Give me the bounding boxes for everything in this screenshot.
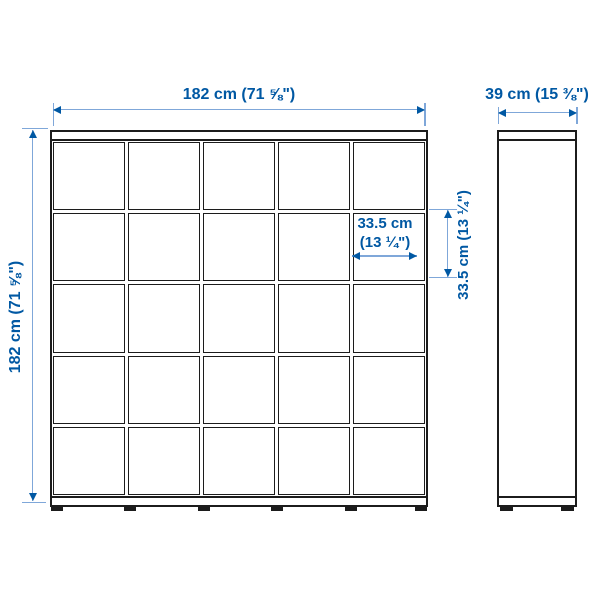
shelf-cell: [278, 213, 350, 281]
extension-tick: [22, 128, 48, 130]
side-foot: [500, 507, 513, 511]
side-view: [497, 130, 577, 507]
shelf-cell: [53, 356, 125, 424]
cell-width-label-line2: (13 ¼"): [345, 234, 425, 252]
shelf-cell: [203, 356, 275, 424]
arrowhead-left-icon: [352, 252, 360, 260]
shelf-cell: [203, 284, 275, 352]
shelf-cell: [278, 427, 350, 495]
shelf-cell: [53, 213, 125, 281]
shelf-cell: [203, 142, 275, 210]
shelf-cell: [278, 142, 350, 210]
front-foot: [345, 507, 357, 511]
arrowhead-down-icon: [29, 493, 37, 501]
front-top-panel: [52, 132, 426, 141]
cell-width-label-line1: 33.5 cm: [345, 215, 425, 233]
shelf-cell: [278, 284, 350, 352]
side-foot: [561, 507, 574, 511]
dimension-diagram-canvas: 182 cm (71 ⅝") 39 cm (15 ⅜") 182 cm (71 …: [0, 0, 600, 600]
shelf-cell: [353, 356, 425, 424]
arrowhead-up-icon: [29, 130, 37, 138]
shelf-cell: [128, 142, 200, 210]
front-width-dimension-line: [53, 109, 425, 111]
shelf-cell: [128, 284, 200, 352]
arrowhead-right-icon: [409, 252, 417, 260]
front-foot: [198, 507, 210, 511]
shelf-cell: [353, 427, 425, 495]
shelf-cell: [353, 284, 425, 352]
shelf-cell: [353, 142, 425, 210]
front-foot: [271, 507, 283, 511]
shelf-cell: [53, 284, 125, 352]
arrowhead-down-icon: [444, 269, 452, 277]
arrowhead-left-icon: [498, 109, 506, 117]
arrowhead-left-icon: [53, 106, 61, 114]
shelf-cell: [203, 427, 275, 495]
side-bottom-panel: [499, 496, 575, 505]
front-foot: [124, 507, 136, 511]
extension-tick: [22, 502, 46, 504]
side-top-panel: [499, 132, 575, 141]
front-view: [50, 130, 428, 507]
shelf-cell: [53, 142, 125, 210]
shelf-grid: [53, 142, 425, 495]
arrowhead-up-icon: [444, 210, 452, 218]
side-depth-dimension-line: [498, 112, 577, 114]
front-foot: [51, 507, 63, 511]
shelf-cell: [278, 356, 350, 424]
front-width-label: 182 cm (71 ⅝"): [50, 86, 428, 104]
front-height-label: 182 cm (71 ⅝"): [7, 167, 27, 467]
arrowhead-right-icon: [569, 109, 577, 117]
side-depth-label: 39 cm (15 ⅜"): [467, 86, 600, 104]
shelf-cell: [128, 356, 200, 424]
cell-height-label: 33.5 cm (13 ¼"): [455, 125, 473, 365]
front-bottom-panel: [52, 496, 426, 505]
front-height-dimension-line: [32, 130, 34, 501]
shelf-cell: [53, 427, 125, 495]
cell-width-dimension-line: [352, 255, 417, 257]
cell-height-dimension-line: [447, 210, 449, 277]
shelf-cell: [203, 213, 275, 281]
front-foot: [415, 507, 427, 511]
shelf-cell: [128, 213, 200, 281]
arrowhead-right-icon: [417, 106, 425, 114]
shelf-cell: [128, 427, 200, 495]
